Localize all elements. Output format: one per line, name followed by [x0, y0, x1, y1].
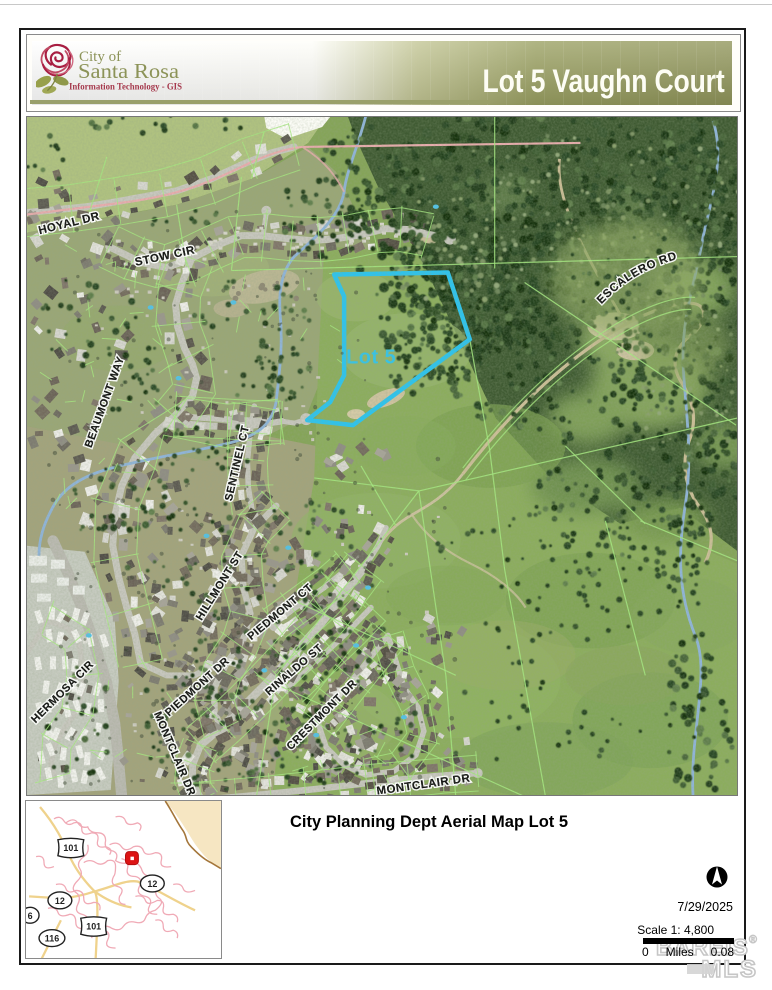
svg-text:Information Technology - GIS: Information Technology - GIS: [69, 82, 182, 92]
svg-text:6: 6: [28, 911, 33, 921]
svg-text:116: 116: [45, 934, 59, 944]
svg-text:101: 101: [86, 922, 101, 932]
svg-text:101: 101: [63, 843, 78, 853]
svg-text:12: 12: [55, 896, 65, 906]
svg-text:12: 12: [147, 879, 157, 889]
svg-text:Santa Rosa: Santa Rosa: [78, 59, 179, 83]
